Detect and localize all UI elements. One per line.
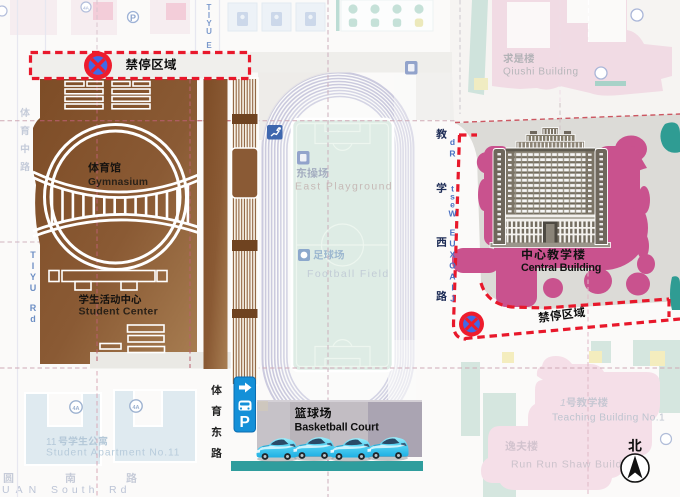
svg-text:U: U	[449, 239, 455, 249]
svg-text:U: U	[30, 283, 37, 293]
svg-text:W: W	[448, 209, 457, 219]
svg-text:X: X	[450, 250, 456, 260]
svg-text:Student Apartment No.11: Student Apartment No.11	[46, 448, 180, 459]
svg-text:1: 1	[560, 397, 566, 409]
svg-text:T: T	[30, 250, 36, 260]
svg-text:Gymnasium: Gymnasium	[88, 177, 148, 188]
svg-text:Teaching Building No.1: Teaching Building No.1	[552, 413, 665, 424]
svg-text:Rd: Rd	[109, 484, 130, 496]
svg-text:I: I	[451, 283, 453, 293]
svg-text:E: E	[450, 228, 456, 238]
svg-text:A: A	[449, 272, 455, 282]
svg-text:t: t	[451, 184, 454, 194]
svg-text:U: U	[206, 27, 212, 36]
svg-text:Football Field: Football Field	[307, 268, 390, 280]
svg-text:d: d	[450, 137, 455, 147]
svg-text:4A: 4A	[83, 6, 90, 11]
svg-text:I: I	[32, 261, 35, 271]
svg-text:UAN: UAN	[2, 484, 42, 496]
svg-text:11: 11	[46, 437, 57, 448]
svg-text:d: d	[30, 314, 36, 324]
svg-text:Central Building: Central Building	[521, 262, 601, 274]
svg-text:South: South	[51, 484, 98, 496]
svg-text:R: R	[449, 149, 455, 159]
svg-text:4A: 4A	[132, 405, 139, 411]
svg-text:P: P	[240, 414, 250, 431]
svg-text:Run Run Shaw Building: Run Run Shaw Building	[511, 459, 639, 471]
svg-text:P: P	[130, 13, 136, 23]
svg-text:Y: Y	[30, 272, 36, 282]
svg-text:R: R	[30, 303, 37, 313]
svg-text:East Playground: East Playground	[295, 181, 393, 193]
svg-text:4A: 4A	[72, 406, 79, 412]
svg-text:Basketball Court: Basketball Court	[295, 422, 380, 434]
svg-text:Qiushi Building: Qiushi Building	[503, 67, 579, 78]
svg-text:J: J	[450, 294, 455, 304]
svg-text:O: O	[449, 261, 456, 271]
svg-text:Student Center: Student Center	[79, 306, 158, 318]
